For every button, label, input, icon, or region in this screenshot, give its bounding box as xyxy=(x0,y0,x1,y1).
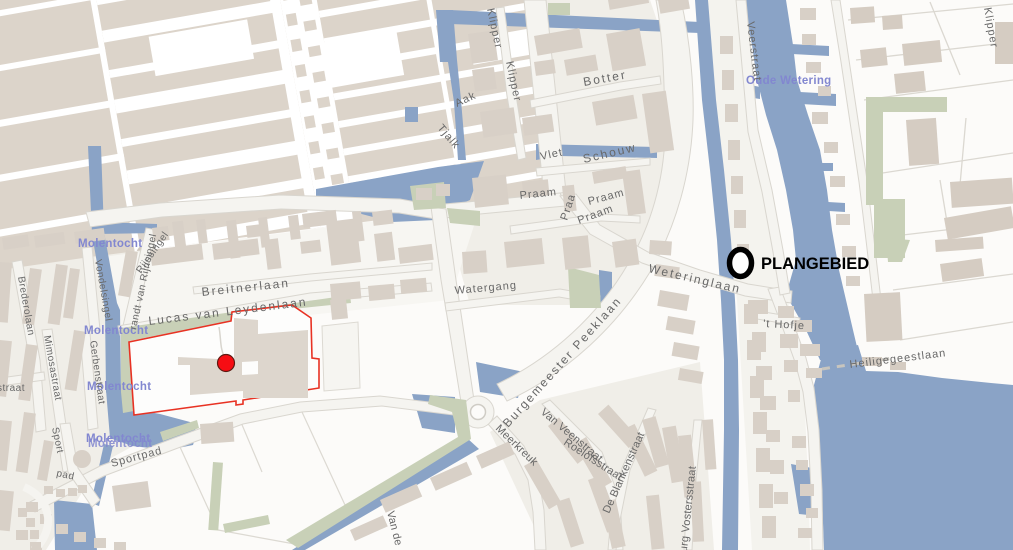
svg-text:Molentocht: Molentocht xyxy=(78,238,142,250)
svg-text:Molentocht: Molentocht xyxy=(88,438,152,450)
svg-text:straat: straat xyxy=(0,383,25,394)
svg-text:PLANGEBIED: PLANGEBIED xyxy=(761,255,869,273)
svg-text:'t Hofje: 't Hofje xyxy=(763,318,805,332)
